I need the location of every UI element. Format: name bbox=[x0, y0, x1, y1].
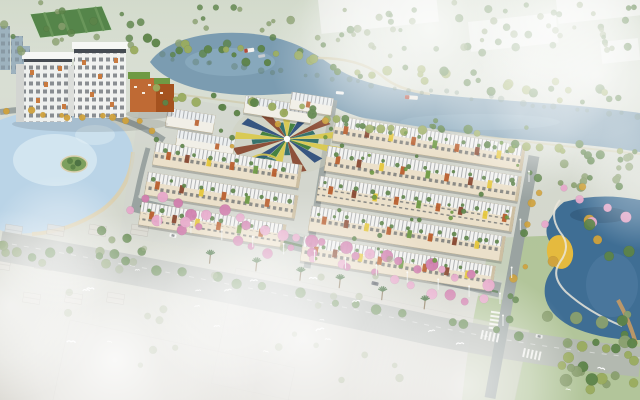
scene-svg bbox=[0, 0, 640, 400]
plaza-center bbox=[284, 136, 290, 142]
fog-patch bbox=[135, 200, 325, 390]
lake-island bbox=[61, 156, 87, 172]
aerial-render bbox=[0, 0, 640, 400]
green-roof bbox=[128, 72, 150, 79]
clubhouse-building bbox=[126, 72, 174, 119]
green-roof-2 bbox=[154, 78, 170, 84]
